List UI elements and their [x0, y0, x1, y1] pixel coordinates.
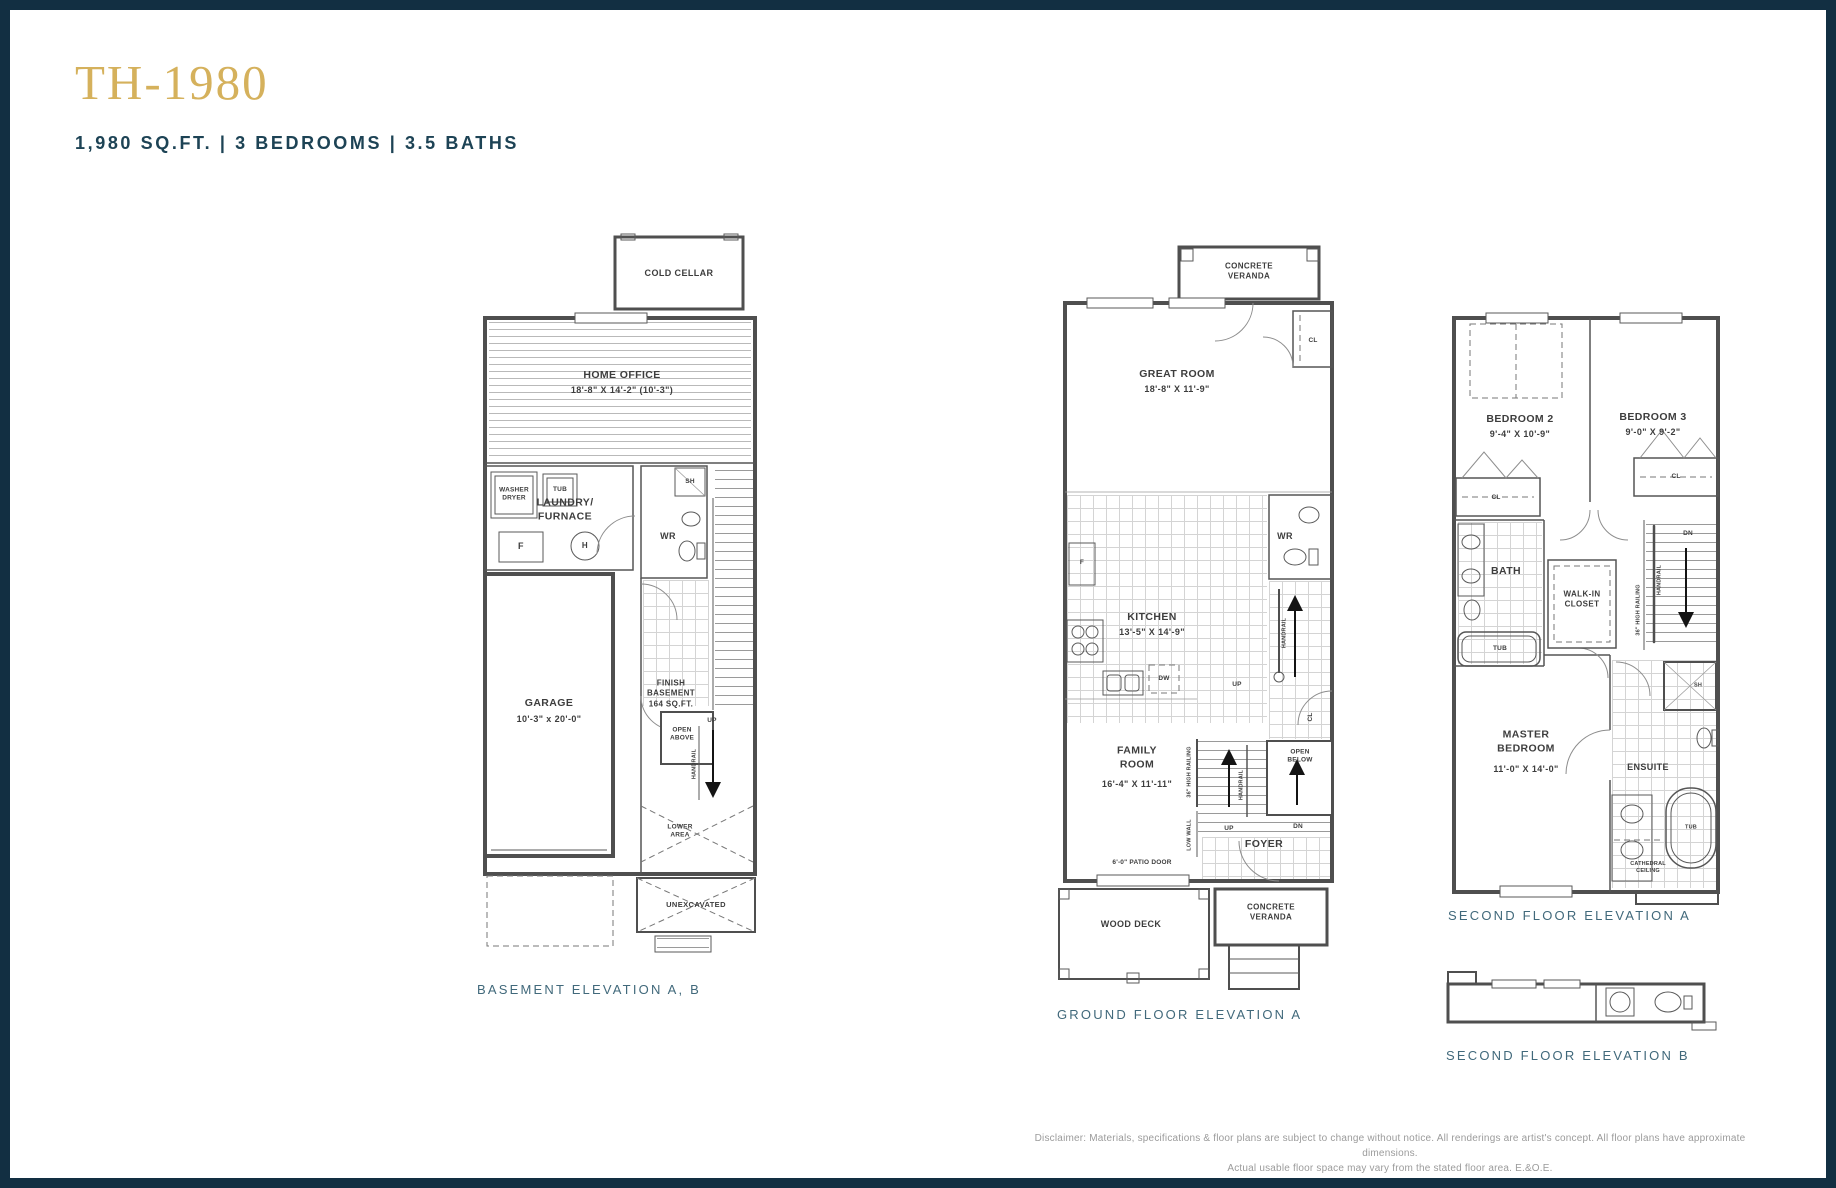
dn-label: DN	[1683, 530, 1693, 538]
high-railing-label: 36" HIGH RAILING	[1186, 746, 1193, 797]
tub-label: TUB	[553, 486, 567, 494]
second-b-walls	[1448, 972, 1716, 1030]
page-title: TH-1980	[75, 54, 519, 111]
handrail-label-lower: HANDRAIL	[1238, 770, 1245, 800]
second-b-caption: SECOND FLOOR ELEVATION B	[1446, 1048, 1690, 1063]
page-subtitle: 1,980 SQ.FT. | 3 BEDROOMS | 3.5 BATHS	[75, 133, 519, 154]
closet-label-right: CL	[1307, 712, 1315, 721]
shower-label: SH	[685, 478, 694, 486]
open-above-label: OPEN ABOVE	[670, 727, 694, 744]
bed-outline	[1470, 324, 1562, 398]
room-label-walk-in-closet: WALK-IN CLOSET	[1563, 590, 1600, 611]
room-dims-family-room: 16'-4" X 11'-11"	[1102, 779, 1172, 791]
up-arrow-icon	[1221, 749, 1237, 765]
ground-plan-drawing	[1057, 245, 1340, 1045]
open-below-label: OPEN BELOW	[1287, 749, 1312, 766]
basement-caption: BASEMENT ELEVATION A, B	[477, 982, 701, 997]
room-dims-bedroom3: 9'-0" X 9'-2"	[1625, 427, 1680, 439]
closet-label-top: CL	[1308, 337, 1317, 345]
ground-caption: GROUND FLOOR ELEVATION A	[1057, 1007, 1302, 1022]
room-dims-kitchen: 13'-5" X 14'-9"	[1119, 627, 1185, 639]
room-label-finish-basement: FINISH BASEMENT 164 SQ.FT.	[647, 678, 695, 709]
header: TH-1980 1,980 SQ.FT. | 3 BEDROOMS | 3.5 …	[75, 54, 519, 154]
shower-label: SH	[1694, 682, 1702, 689]
unexcavated-label: UNEXCAVATED	[666, 900, 726, 910]
wood-deck-walls	[1059, 889, 1209, 983]
room-label-concrete-veranda-top: CONCRETE VERANDA	[1225, 262, 1273, 283]
room-dims-master-bedroom: 11'-0" X 14'-0"	[1493, 764, 1558, 776]
down-arrow-icon	[1678, 612, 1694, 628]
tub-label-ensuite: TUB	[1685, 824, 1697, 831]
room-dims-home-office: 18'-8" X 14'-2" (10'-3")	[571, 385, 673, 397]
room-label-bedroom3: BEDROOM 3	[1619, 411, 1686, 425]
fridge-label: F	[1080, 559, 1084, 567]
stove-icon	[1067, 620, 1103, 662]
floorplan-sheet: TH-1980 1,980 SQ.FT. | 3 BEDROOMS | 3.5 …	[0, 0, 1836, 1188]
lower-area-label: LOWER AREA	[667, 824, 692, 841]
closet-label-right: CL	[1671, 473, 1680, 481]
room-label-family-room: FAMILY ROOM	[1117, 744, 1157, 771]
down-arrow-icon	[705, 782, 721, 798]
up-label-kitchen: UP	[1232, 681, 1241, 689]
second-stairs	[1644, 520, 1694, 650]
room-label-bedroom2: BEDROOM 2	[1486, 413, 1553, 427]
tub-label-bath: TUB	[1493, 645, 1507, 653]
room-label-foyer: FOYER	[1245, 838, 1283, 852]
room-label-garage: GARAGE	[525, 697, 574, 711]
ground-floor-plan: CONCRETE VERANDA GREAT ROOM 18'-8" X 11'…	[1057, 245, 1340, 1045]
room-label-wr: WR	[1277, 531, 1293, 543]
porch-outline	[487, 876, 613, 946]
second-floor-plan-a: BEDROOM 2 9'-4" X 10'-9" BEDROOM 3 9'-0"…	[1448, 310, 1725, 930]
room-label-home-office: HOME OFFICE	[583, 369, 660, 383]
room-dims-great-room: 18'-8" X 11'-9"	[1144, 384, 1209, 396]
up-label: UP	[707, 717, 716, 725]
room-label-great-room: GREAT ROOM	[1139, 368, 1215, 382]
basement-plan-drawing	[477, 234, 763, 1014]
high-railing-label: 36" HIGH RAILING	[1635, 584, 1642, 635]
furnace-label: F	[518, 541, 524, 553]
room-label-master-bedroom: MASTER BEDROOM	[1497, 728, 1555, 755]
up-arrow-icon	[1287, 595, 1303, 611]
cathedral-ceiling-label: CATHEDRAL CEILING	[1630, 861, 1666, 875]
second-plan-drawing	[1448, 310, 1725, 930]
room-label-bath: BATH	[1491, 565, 1521, 579]
closet-label-left: CL	[1491, 494, 1500, 502]
handrail-label: HANDRAIL	[1656, 565, 1663, 595]
handrail-label: HANDRAIL	[691, 749, 698, 779]
room-label-kitchen: KITCHEN	[1127, 611, 1176, 625]
room-label-wood-deck: WOOD DECK	[1101, 919, 1162, 931]
disclaimer: Disclaimer: Materials, specifications & …	[1010, 1131, 1770, 1176]
second-floor-plan-b: SECOND FLOOR ELEVATION B	[1446, 968, 1716, 1078]
room-label-laundry-furnace: LAUNDRY/ FURNACE	[536, 496, 593, 523]
water-heater-label: H	[582, 541, 588, 551]
bathroom-fixtures	[1606, 988, 1692, 1016]
handrail-label-upper: HANDRAIL	[1281, 618, 1288, 648]
room-label-cold-cellar: COLD CELLAR	[645, 268, 714, 280]
room-label-ensuite: ENSUITE	[1627, 762, 1669, 774]
second-a-caption: SECOND FLOOR ELEVATION A	[1448, 908, 1691, 923]
room-dims-garage: 10'-3" x 20'-0"	[517, 714, 582, 726]
basement-plan: COLD CELLAR HOME OFFICE 18'-8" X 14'-2" …	[477, 234, 763, 1014]
room-dims-bedroom2: 9'-4" X 10'-9"	[1490, 429, 1550, 441]
door-arcs	[1560, 510, 1650, 774]
room-label-concrete-veranda-bottom: CONCRETE VERANDA	[1247, 903, 1295, 924]
room-label-wr: WR	[660, 531, 676, 543]
patio-door-label: 6'-0" PATIO DOOR	[1112, 859, 1171, 867]
disclaimer-line2: Actual usable floor space may vary from …	[1010, 1161, 1770, 1176]
low-wall-label: LOW WALL	[1186, 819, 1193, 851]
washer-dryer-label: WASHER DRYER	[499, 487, 529, 504]
kitchen-sink-icon	[1103, 671, 1143, 695]
disclaimer-line1: Disclaimer: Materials, specifications & …	[1010, 1131, 1770, 1161]
dn-label-foyer: DN	[1293, 823, 1303, 831]
up-label-foyer: UP	[1224, 825, 1233, 833]
lower-area-lines	[641, 806, 753, 862]
sink-icon	[1610, 992, 1630, 1012]
dishwasher-label: DW	[1158, 675, 1169, 683]
steps-outline	[655, 936, 711, 952]
toilet-icon	[1655, 992, 1681, 1012]
patio-door	[1097, 875, 1189, 886]
